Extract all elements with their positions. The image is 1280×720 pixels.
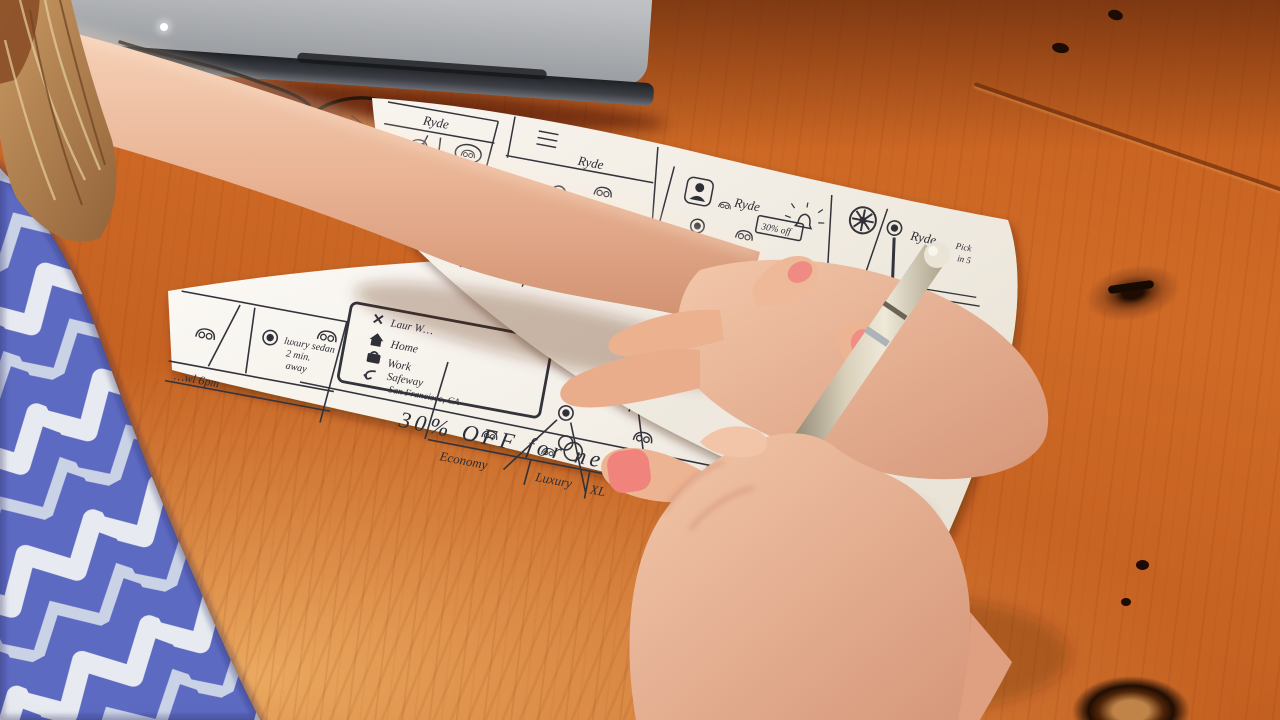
tier-tab-label: Economy	[438, 448, 490, 472]
pen-cap	[924, 242, 950, 268]
scene-svg: luxury sedan 2 min. away …wl 6pm Laur W……	[0, 0, 1280, 720]
pen-cap-highlight	[928, 246, 938, 256]
tier-tab-label: XL	[588, 481, 607, 499]
photo-scene: luxury sedan 2 min. away …wl 6pm Laur W……	[0, 0, 1280, 720]
thumb-fingernail	[605, 447, 652, 494]
tier-tab-label: Luxury	[533, 469, 573, 491]
shirt	[0, 168, 260, 720]
laptop-led-glow	[156, 19, 172, 35]
